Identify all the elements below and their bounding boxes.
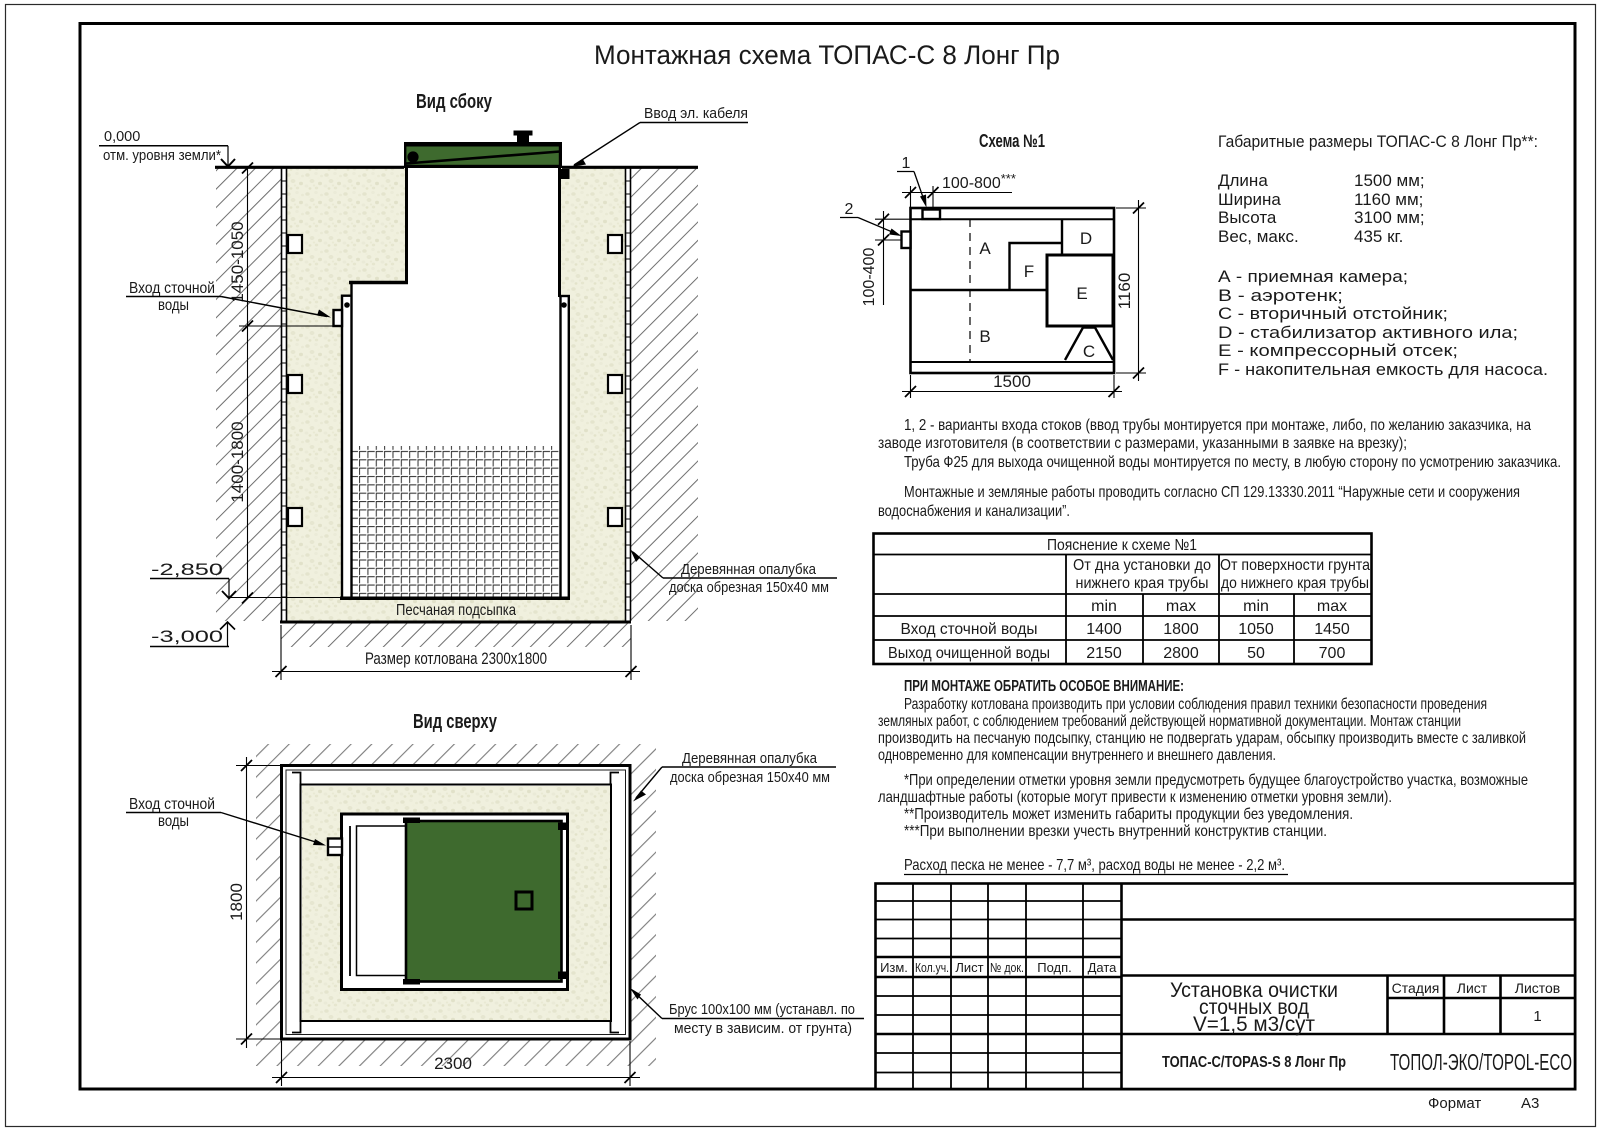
- svg-text:доска обрезная 150х40 мм: доска обрезная 150х40 мм: [670, 769, 830, 786]
- svg-text:1160: 1160: [1115, 273, 1134, 310]
- svg-text:-3,000: -3,000: [151, 627, 223, 646]
- svg-text:ПРИ МОНТАЖЕ ОБРАТИТЬ ОСОБОЕ ВН: ПРИ МОНТАЖЕ ОБРАТИТЬ ОСОБОЕ ВНИМАНИЕ:: [904, 678, 1184, 695]
- svg-text:Деревянная опалубка: Деревянная опалубка: [682, 750, 818, 767]
- svg-text:Лист: Лист: [955, 960, 983, 975]
- svg-text:Подп.: Подп.: [1037, 960, 1072, 975]
- svg-text:min: min: [1243, 598, 1269, 615]
- svg-text:100-800***: 100-800***: [942, 171, 1016, 192]
- svg-text:2150: 2150: [1086, 645, 1122, 662]
- svg-text:водоснабжения и канализации”.: водоснабжения и канализации”.: [878, 503, 1070, 520]
- svg-text:Вход сточной: Вход сточной: [129, 796, 215, 813]
- svg-text:***При выполнении врезки учест: ***При выполнении врезки учесть внутренн…: [904, 823, 1327, 840]
- svg-text:В - аэротенк;: В - аэротенк;: [1218, 286, 1343, 305]
- svg-text:2: 2: [845, 201, 854, 218]
- svg-text:1400: 1400: [1086, 621, 1122, 638]
- svg-text:Монтажная схема ТОПАС-С 8 Лонг: Монтажная схема ТОПАС-С 8 Лонг Пр: [594, 40, 1060, 70]
- svg-text:до нижнего края трубы: до нижнего края трубы: [1221, 575, 1369, 592]
- svg-text:**Производитель может изменить: **Производитель может изменить габариты …: [904, 806, 1353, 823]
- svg-text:Ввод эл. кабеля: Ввод эл. кабеля: [644, 105, 748, 122]
- svg-text:F: F: [1024, 262, 1034, 281]
- svg-text:-2,850: -2,850: [151, 560, 223, 579]
- svg-text:воды: воды: [158, 813, 189, 830]
- svg-text:100-400: 100-400: [861, 248, 878, 307]
- svg-text:max: max: [1317, 598, 1347, 615]
- svg-text:Вид сбоку: Вид сбоку: [416, 91, 493, 113]
- svg-text:Дата: Дата: [1088, 960, 1118, 975]
- svg-text:ландшафтные работы (которые мо: ландшафтные работы (которые могут привес…: [878, 789, 1392, 806]
- svg-text:Кол.уч.: Кол.уч.: [915, 960, 949, 975]
- svg-text:ТОПОЛ-ЭКО/TOPOL-ECO: ТОПОЛ-ЭКО/TOPOL-ECO: [1390, 1049, 1572, 1075]
- svg-text:max: max: [1166, 598, 1196, 615]
- svg-text:Вход сточной: Вход сточной: [129, 280, 215, 297]
- svg-text:Е - компрессорный отсек;: Е - компрессорный отсек;: [1218, 341, 1458, 360]
- svg-text:1160 мм;: 1160 мм;: [1354, 190, 1423, 209]
- svg-text:ТОПАС-С/TOPAS-S 8 Лонг Пр: ТОПАС-С/TOPAS-S 8 Лонг Пр: [1162, 1054, 1346, 1071]
- svg-text:воды: воды: [158, 297, 189, 314]
- svg-text:земляных работ, с соблюдением: земляных работ, с соблюдением требований…: [878, 713, 1461, 730]
- svg-text:Брус 100х100 мм (устанавл. по: Брус 100х100 мм (устанавл. по: [669, 1001, 855, 1018]
- svg-text:Лист: Лист: [1457, 980, 1488, 996]
- svg-text:Размер котлована 2300х1800: Размер котлована 2300х1800: [365, 649, 547, 668]
- svg-text:Габаритные размеры ТОПАС-С 8 Л: Габаритные размеры ТОПАС-С 8 Лонг Пр**:: [1218, 132, 1538, 151]
- svg-text:Выход очищенной воды: Выход очищенной воды: [888, 645, 1050, 662]
- svg-text:Вид сверху: Вид сверху: [413, 711, 498, 733]
- svg-text:Листов: Листов: [1515, 980, 1561, 996]
- svg-text:месту в зависим. от грунта): месту в зависим. от грунта): [674, 1020, 852, 1037]
- svg-text:нижнего края трубы: нижнего края трубы: [1076, 575, 1209, 592]
- svg-text:С: С: [1083, 342, 1095, 361]
- svg-text:Е: Е: [1076, 284, 1087, 303]
- svg-text:D: D: [1080, 229, 1092, 248]
- svg-text:С - вторичный отстойник;: С - вторичный отстойник;: [1218, 304, 1448, 323]
- svg-text:D - стабилизатор активного ила: D - стабилизатор активного ила;: [1218, 323, 1518, 342]
- svg-text:0,000: 0,000: [104, 129, 140, 145]
- svg-text:1800: 1800: [227, 883, 246, 921]
- svg-text:435 кг.: 435 кг.: [1354, 227, 1403, 246]
- svg-text:доска обрезная 150х40 мм: доска обрезная 150х40 мм: [669, 579, 829, 596]
- svg-text:одновременно для компенсации в: одновременно для компенсации внутреннего…: [878, 747, 1276, 764]
- svg-text:3100 мм;: 3100 мм;: [1354, 208, 1425, 227]
- svg-text:1500: 1500: [993, 372, 1031, 391]
- svg-text:1450: 1450: [1314, 621, 1350, 638]
- svg-text:min: min: [1091, 598, 1117, 615]
- svg-text:1450-1050: 1450-1050: [228, 221, 247, 302]
- svg-text:V=1,5 м3/сут: V=1,5 м3/сут: [1193, 1013, 1315, 1036]
- svg-text:Изм.: Изм.: [880, 960, 908, 975]
- svg-text:*При определении отметки уровн: *При определении отметки уровня земли пр…: [904, 772, 1528, 789]
- svg-text:В: В: [979, 327, 990, 346]
- svg-text:Деревянная опалубка: Деревянная опалубка: [681, 561, 817, 578]
- svg-text:2800: 2800: [1163, 645, 1199, 662]
- svg-text:А: А: [979, 239, 991, 258]
- svg-text:Расход песка не менее - 7,7 м³: Расход песка не менее - 7,7 м³, расход в…: [904, 857, 1285, 874]
- svg-text:700: 700: [1319, 645, 1346, 662]
- svg-text:Труба Ф25 для выхода очищенной: Труба Ф25 для выхода очищенной воды монт…: [904, 454, 1561, 471]
- svg-text:1: 1: [902, 155, 911, 172]
- svg-text:отм. уровня земли*: отм. уровня земли*: [103, 147, 221, 164]
- svg-text:Длина: Длина: [1218, 171, 1268, 190]
- svg-text:1500 мм;: 1500 мм;: [1354, 171, 1425, 190]
- svg-text:Ширина: Ширина: [1218, 190, 1281, 209]
- svg-text:заводе изготовителя (в соответ: заводе изготовителя (в соответствии с ра…: [878, 435, 1407, 452]
- svg-text:1050: 1050: [1238, 621, 1274, 638]
- svg-text:производить на песчаную подсып: производить на песчаную подсыпку, станци…: [878, 730, 1526, 747]
- svg-text:2300: 2300: [434, 1054, 472, 1073]
- svg-text:От дна установки до: От дна установки до: [1073, 557, 1211, 574]
- svg-text:№ док.: № док.: [990, 960, 1024, 975]
- svg-text:Схема №1: Схема №1: [979, 131, 1045, 151]
- svg-text:Разработку котлована производи: Разработку котлована производить при усл…: [904, 696, 1487, 713]
- svg-text:1400-1800: 1400-1800: [228, 421, 247, 502]
- svg-text:1, 2 - варианты входа стоков: 1, 2 - варианты входа стоков (ввод трубы…: [904, 417, 1531, 434]
- svg-text:Вход сточной воды: Вход сточной воды: [901, 621, 1038, 638]
- svg-text:Монтажные и земляные работы пр: Монтажные и земляные работы проводить со…: [904, 484, 1520, 501]
- svg-text:А - приемная камера;: А - приемная камера;: [1218, 267, 1408, 286]
- svg-text:Высота: Высота: [1218, 208, 1277, 227]
- svg-text:А3: А3: [1521, 1095, 1539, 1112]
- svg-text:Вес, макс.: Вес, макс.: [1218, 227, 1299, 246]
- svg-text:F - накопительная емкость для: F - накопительная емкость для насоса.: [1218, 360, 1548, 379]
- svg-text:1800: 1800: [1163, 621, 1199, 638]
- svg-text:От поверхности грунта: От поверхности грунта: [1220, 557, 1370, 574]
- svg-text:Формат: Формат: [1428, 1095, 1481, 1112]
- svg-text:Песчаная подсыпка: Песчаная подсыпка: [396, 602, 516, 619]
- svg-text:Стадия: Стадия: [1392, 980, 1440, 996]
- svg-text:50: 50: [1247, 645, 1265, 662]
- svg-text:1: 1: [1533, 1008, 1541, 1025]
- svg-text:Пояснение к схеме №1: Пояснение к схеме №1: [1047, 537, 1197, 554]
